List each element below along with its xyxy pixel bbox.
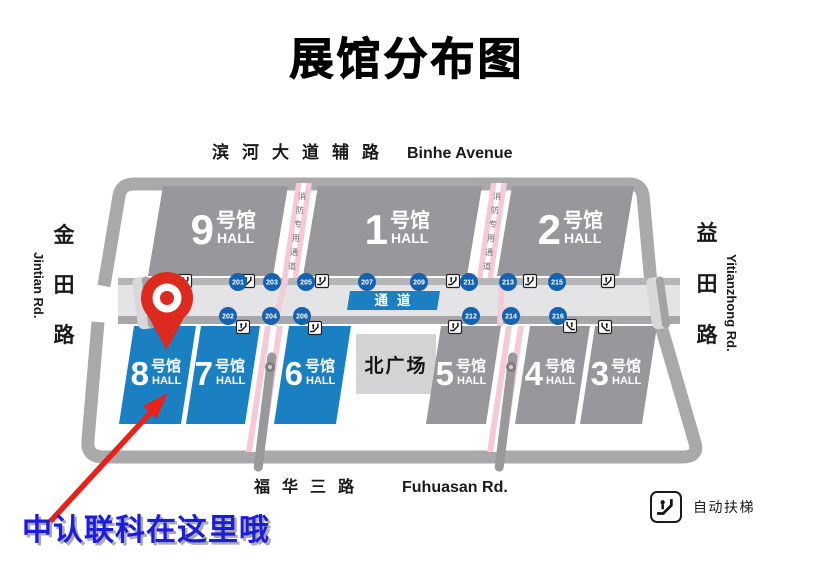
svg-text:号馆: 号馆: [456, 357, 486, 375]
svg-text:6: 6: [285, 355, 303, 392]
svg-text:HALL: HALL: [152, 375, 182, 387]
road-bottom-en: Fuhuasan Rd.: [402, 479, 508, 496]
gate-213: 213: [499, 273, 517, 291]
gate-212: 212: [462, 307, 480, 325]
hall-2-label: 2 号馆 HALL: [538, 206, 603, 253]
gate-204: 204: [262, 307, 280, 325]
road-right: 益 田 路 Yitianzhong Rd.: [697, 221, 740, 352]
svg-text:9: 9: [191, 206, 214, 253]
hall-5-label: 5 号馆 HALL: [436, 355, 487, 392]
gate-211: 211: [460, 273, 478, 291]
fire-lane-char: 消: [298, 191, 306, 201]
exhibition-map: 消 防 专 用 通 道 消 防 专 用 通 道 9 号馆 HALL 1 号馆 H…: [0, 0, 814, 571]
svg-text:211: 211: [463, 280, 474, 287]
gate-205: 205: [297, 273, 315, 291]
gate-207: 207: [358, 273, 376, 291]
svg-text:号馆: 号馆: [563, 208, 603, 232]
svg-text:号馆: 号馆: [545, 357, 575, 375]
hall-4-label: 4 号馆 HALL: [525, 355, 576, 392]
svg-text:215: 215: [551, 280, 563, 287]
escalator-legend-label: 自动扶梯: [693, 499, 755, 515]
gate-215: 215: [548, 273, 566, 291]
svg-text:204: 204: [265, 314, 277, 321]
fire-lane-char: 道: [483, 261, 491, 271]
svg-text:HALL: HALL: [457, 375, 487, 387]
corridor-passage-label: 通道: [347, 291, 440, 310]
svg-text:207: 207: [361, 280, 373, 287]
gate-202: 202: [219, 307, 237, 325]
hall-7-label: 7 号馆 HALL: [195, 355, 246, 392]
fire-lane-char: 专: [294, 219, 302, 229]
gate-203: 203: [263, 273, 281, 291]
road-left: 金 田 路 Jintian Rd.: [31, 223, 76, 347]
page-title: 展馆分布图: [290, 35, 525, 84]
svg-text:213: 213: [502, 280, 514, 287]
svg-text:206: 206: [296, 314, 308, 321]
fire-lane-char: 防: [491, 205, 499, 215]
north-plaza-label: 北广场: [364, 354, 427, 377]
fire-lane-char: 防: [296, 205, 304, 215]
gate-209: 209: [410, 273, 428, 291]
svg-text:号馆: 号馆: [216, 208, 256, 232]
svg-text:214: 214: [505, 314, 517, 321]
fire-lane-char: 用: [487, 234, 495, 243]
svg-text:201: 201: [232, 280, 244, 287]
svg-text:号馆: 号馆: [215, 357, 245, 375]
svg-text:号馆: 号馆: [151, 357, 181, 375]
annotation-text: 中认联科在这里哦: [22, 513, 270, 547]
escalator-legend: 自动扶梯: [651, 492, 755, 522]
svg-text:3: 3: [591, 355, 609, 392]
svg-text:2: 2: [538, 206, 561, 253]
fire-lane-char: 用: [292, 234, 300, 243]
svg-text:1: 1: [365, 206, 388, 253]
map-svg: 消 防 专 用 通 道 消 防 专 用 通 道 9 号馆 HALL 1 号馆 H…: [0, 0, 814, 571]
gate-206: 206: [293, 307, 311, 325]
road-top-en: Binhe Avenue: [407, 145, 513, 162]
svg-text:HALL: HALL: [306, 375, 336, 387]
road-top-zh: 滨河大道辅路: [212, 142, 392, 162]
svg-text:号馆: 号馆: [611, 357, 641, 375]
svg-text:205: 205: [300, 280, 312, 287]
svg-text:5: 5: [436, 355, 454, 392]
svg-text:212: 212: [465, 314, 477, 321]
svg-text:HALL: HALL: [391, 230, 429, 246]
svg-text:金: 金: [53, 223, 76, 247]
fire-lane-char: 道: [288, 261, 296, 271]
svg-text:HALL: HALL: [216, 375, 246, 387]
svg-text:7: 7: [195, 355, 213, 392]
hall-3-label: 3 号馆 HALL: [591, 355, 642, 392]
svg-text:益: 益: [697, 221, 718, 245]
svg-text:HALL: HALL: [217, 230, 255, 246]
road-bottom-zh: 福华三路: [253, 477, 366, 496]
svg-text:HALL: HALL: [546, 375, 576, 387]
hall-8-label: 8 号馆 HALL: [131, 355, 182, 392]
hall-1-label: 1 号馆 HALL: [365, 206, 430, 253]
svg-text:号馆: 号馆: [390, 208, 430, 232]
svg-text:216: 216: [552, 314, 564, 321]
gate-214: 214: [502, 307, 520, 325]
svg-text:路: 路: [54, 323, 76, 347]
fire-lane-char: 消: [493, 191, 501, 201]
fire-lane-char: 通: [485, 247, 493, 257]
fire-lane-char: 通: [290, 247, 298, 257]
hall-9-label: 9 号馆 HALL: [191, 206, 256, 253]
svg-text:203: 203: [266, 280, 278, 287]
svg-text:田: 田: [54, 274, 75, 297]
svg-text:HALL: HALL: [564, 230, 602, 246]
gate-216: 216: [549, 307, 567, 325]
svg-text:路: 路: [697, 323, 719, 347]
svg-text:田: 田: [697, 273, 718, 296]
svg-text:8: 8: [131, 355, 149, 392]
svg-text:通道: 通道: [375, 292, 420, 308]
svg-text:Yitianzhong Rd.: Yitianzhong Rd.: [724, 254, 739, 352]
svg-text:209: 209: [413, 280, 425, 287]
svg-text:202: 202: [222, 314, 234, 321]
svg-text:号馆: 号馆: [305, 357, 335, 375]
hall-6-label: 6 号馆 HALL: [285, 355, 336, 392]
svg-text:4: 4: [525, 355, 544, 392]
gate-201: 201: [229, 273, 247, 291]
fire-lane-char: 专: [489, 219, 497, 229]
svg-text:Jintian Rd.: Jintian Rd.: [31, 252, 46, 318]
svg-text:HALL: HALL: [612, 375, 642, 387]
